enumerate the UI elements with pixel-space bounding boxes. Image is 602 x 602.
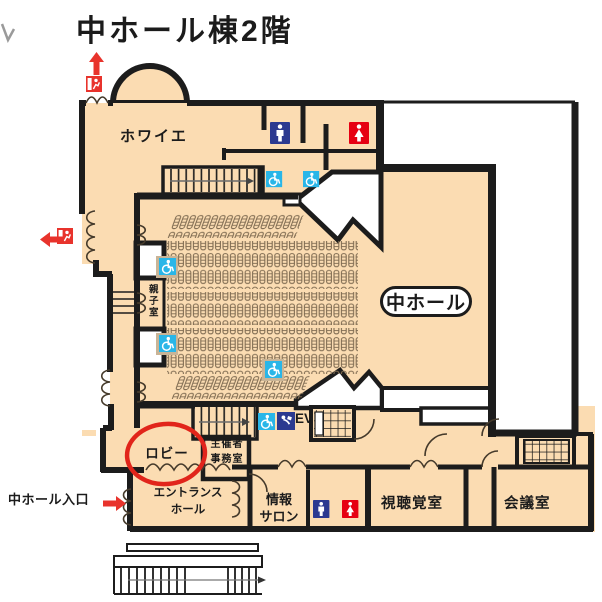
room-label-elevator: EV — [295, 409, 313, 429]
female-restroom-icon — [349, 122, 369, 144]
wheelchair-accessible-icon — [265, 361, 282, 378]
annotation-hall-entrance: 中ホール入口 — [8, 491, 89, 510]
room-label-foyer: ホワイエ — [120, 126, 188, 148]
female-restroom-icon — [342, 500, 358, 518]
room-label-organizer-office: 主催者 事務室 — [205, 437, 249, 467]
wheelchair-accessible-icon — [258, 413, 275, 430]
wheelchair-accessible-icon — [159, 258, 176, 275]
stairs-meeting-room — [517, 436, 574, 467]
room-label-entrance-hall: エントランス ホール — [142, 485, 234, 518]
page-title: 中ホール棟2階 — [76, 10, 294, 54]
room-label-av-room: 視聴覚室 — [381, 494, 443, 515]
exit-arrow-up-icon — [89, 52, 104, 75]
stairs-lobby — [193, 405, 257, 439]
emergency-exit-icon — [86, 76, 102, 92]
room-label-hall: 中ホール — [380, 286, 472, 317]
male-restroom-icon — [270, 122, 290, 144]
wheelchair-accessible-icon — [303, 171, 319, 187]
room-label-parent-child: 親子室 — [145, 284, 159, 319]
multipurpose-toilet-icon — [277, 412, 295, 430]
wheelchair-accessible-icon — [159, 335, 176, 352]
room-label-lobby: ロビー — [138, 444, 196, 464]
wheelchair-accessible-icon — [266, 171, 282, 187]
floor-plan: 中ホール棟2階 ホワイエ 中ホール 親子室 ロビー 主催者 事務室 EV エント… — [0, 0, 602, 602]
stairs-elevator — [311, 407, 354, 440]
corner-mark — [2, 24, 14, 40]
stairs-exterior — [114, 544, 266, 594]
male-restroom-icon — [313, 500, 329, 518]
room-label-meeting-room: 会議室 — [504, 494, 551, 515]
room-label-info-salon: 情報 サロン — [248, 492, 310, 526]
stairs-upper — [163, 167, 263, 194]
